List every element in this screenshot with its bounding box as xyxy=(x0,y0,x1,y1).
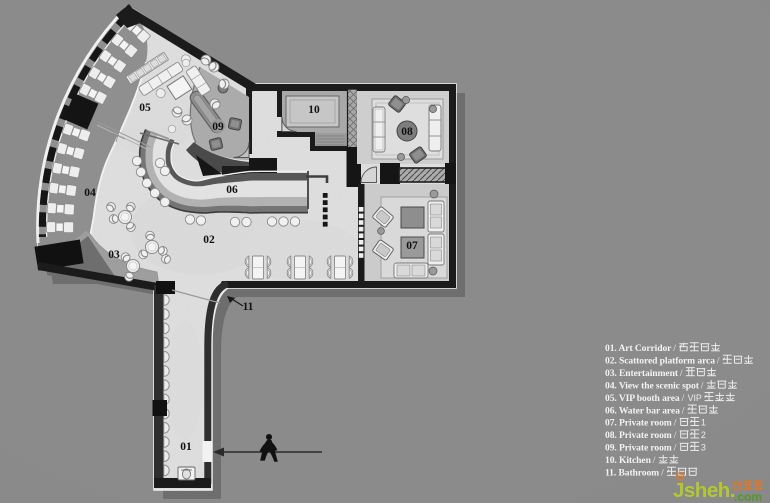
svg-text:01. Art Corridor: 01. Art Corridor xyxy=(605,343,672,354)
svg-text:3: 3 xyxy=(701,443,706,453)
svg-text:03. Entertainment: 03. Entertainment xyxy=(605,368,679,379)
svg-text:/: / xyxy=(717,355,720,366)
svg-text:07: 07 xyxy=(406,240,418,252)
svg-text:02: 02 xyxy=(203,234,215,246)
svg-text:10. Kitchen: 10. Kitchen xyxy=(605,455,652,466)
svg-text:2: 2 xyxy=(701,430,706,440)
svg-text:10: 10 xyxy=(308,104,320,116)
svg-text:VIP: VIP xyxy=(688,393,702,403)
svg-text:/: / xyxy=(701,380,704,391)
svg-text:/: / xyxy=(674,418,677,429)
svg-text:Jsheh.: Jsheh. xyxy=(673,479,735,502)
svg-text:01: 01 xyxy=(180,441,192,453)
svg-text:11: 11 xyxy=(243,301,254,313)
svg-text:06: 06 xyxy=(226,184,238,196)
svg-text:03: 03 xyxy=(108,249,120,261)
svg-text:08: 08 xyxy=(401,126,413,138)
svg-text:/: / xyxy=(674,430,677,441)
svg-text:09. Private room: 09. Private room xyxy=(605,443,672,454)
svg-text:05: 05 xyxy=(139,102,151,114)
svg-text:07. Private room: 07. Private room xyxy=(605,418,672,429)
svg-text:/: / xyxy=(682,405,685,416)
svg-text:/: / xyxy=(680,368,683,379)
svg-text:04: 04 xyxy=(84,187,96,199)
svg-text:/: / xyxy=(653,455,656,466)
svg-text:06. Water bar area: 06. Water bar area xyxy=(605,405,680,416)
svg-text:/: / xyxy=(674,443,677,454)
svg-text:04. View the scenic spot: 04. View the scenic spot xyxy=(605,380,700,391)
svg-text:/: / xyxy=(673,343,676,354)
svg-text:05. VIP booth area: 05. VIP booth area xyxy=(605,393,680,404)
svg-text:09: 09 xyxy=(212,121,224,133)
svg-text:/: / xyxy=(682,393,685,404)
svg-text:1: 1 xyxy=(701,418,706,428)
svg-text:.com: .com xyxy=(734,490,762,503)
svg-text:/: / xyxy=(661,468,664,479)
svg-text:11. Bathroom: 11. Bathroom xyxy=(605,468,659,479)
svg-text:08. Private room: 08. Private room xyxy=(605,430,672,441)
svg-text:02. Scattored platform arca: 02. Scattored platform arca xyxy=(605,355,715,366)
